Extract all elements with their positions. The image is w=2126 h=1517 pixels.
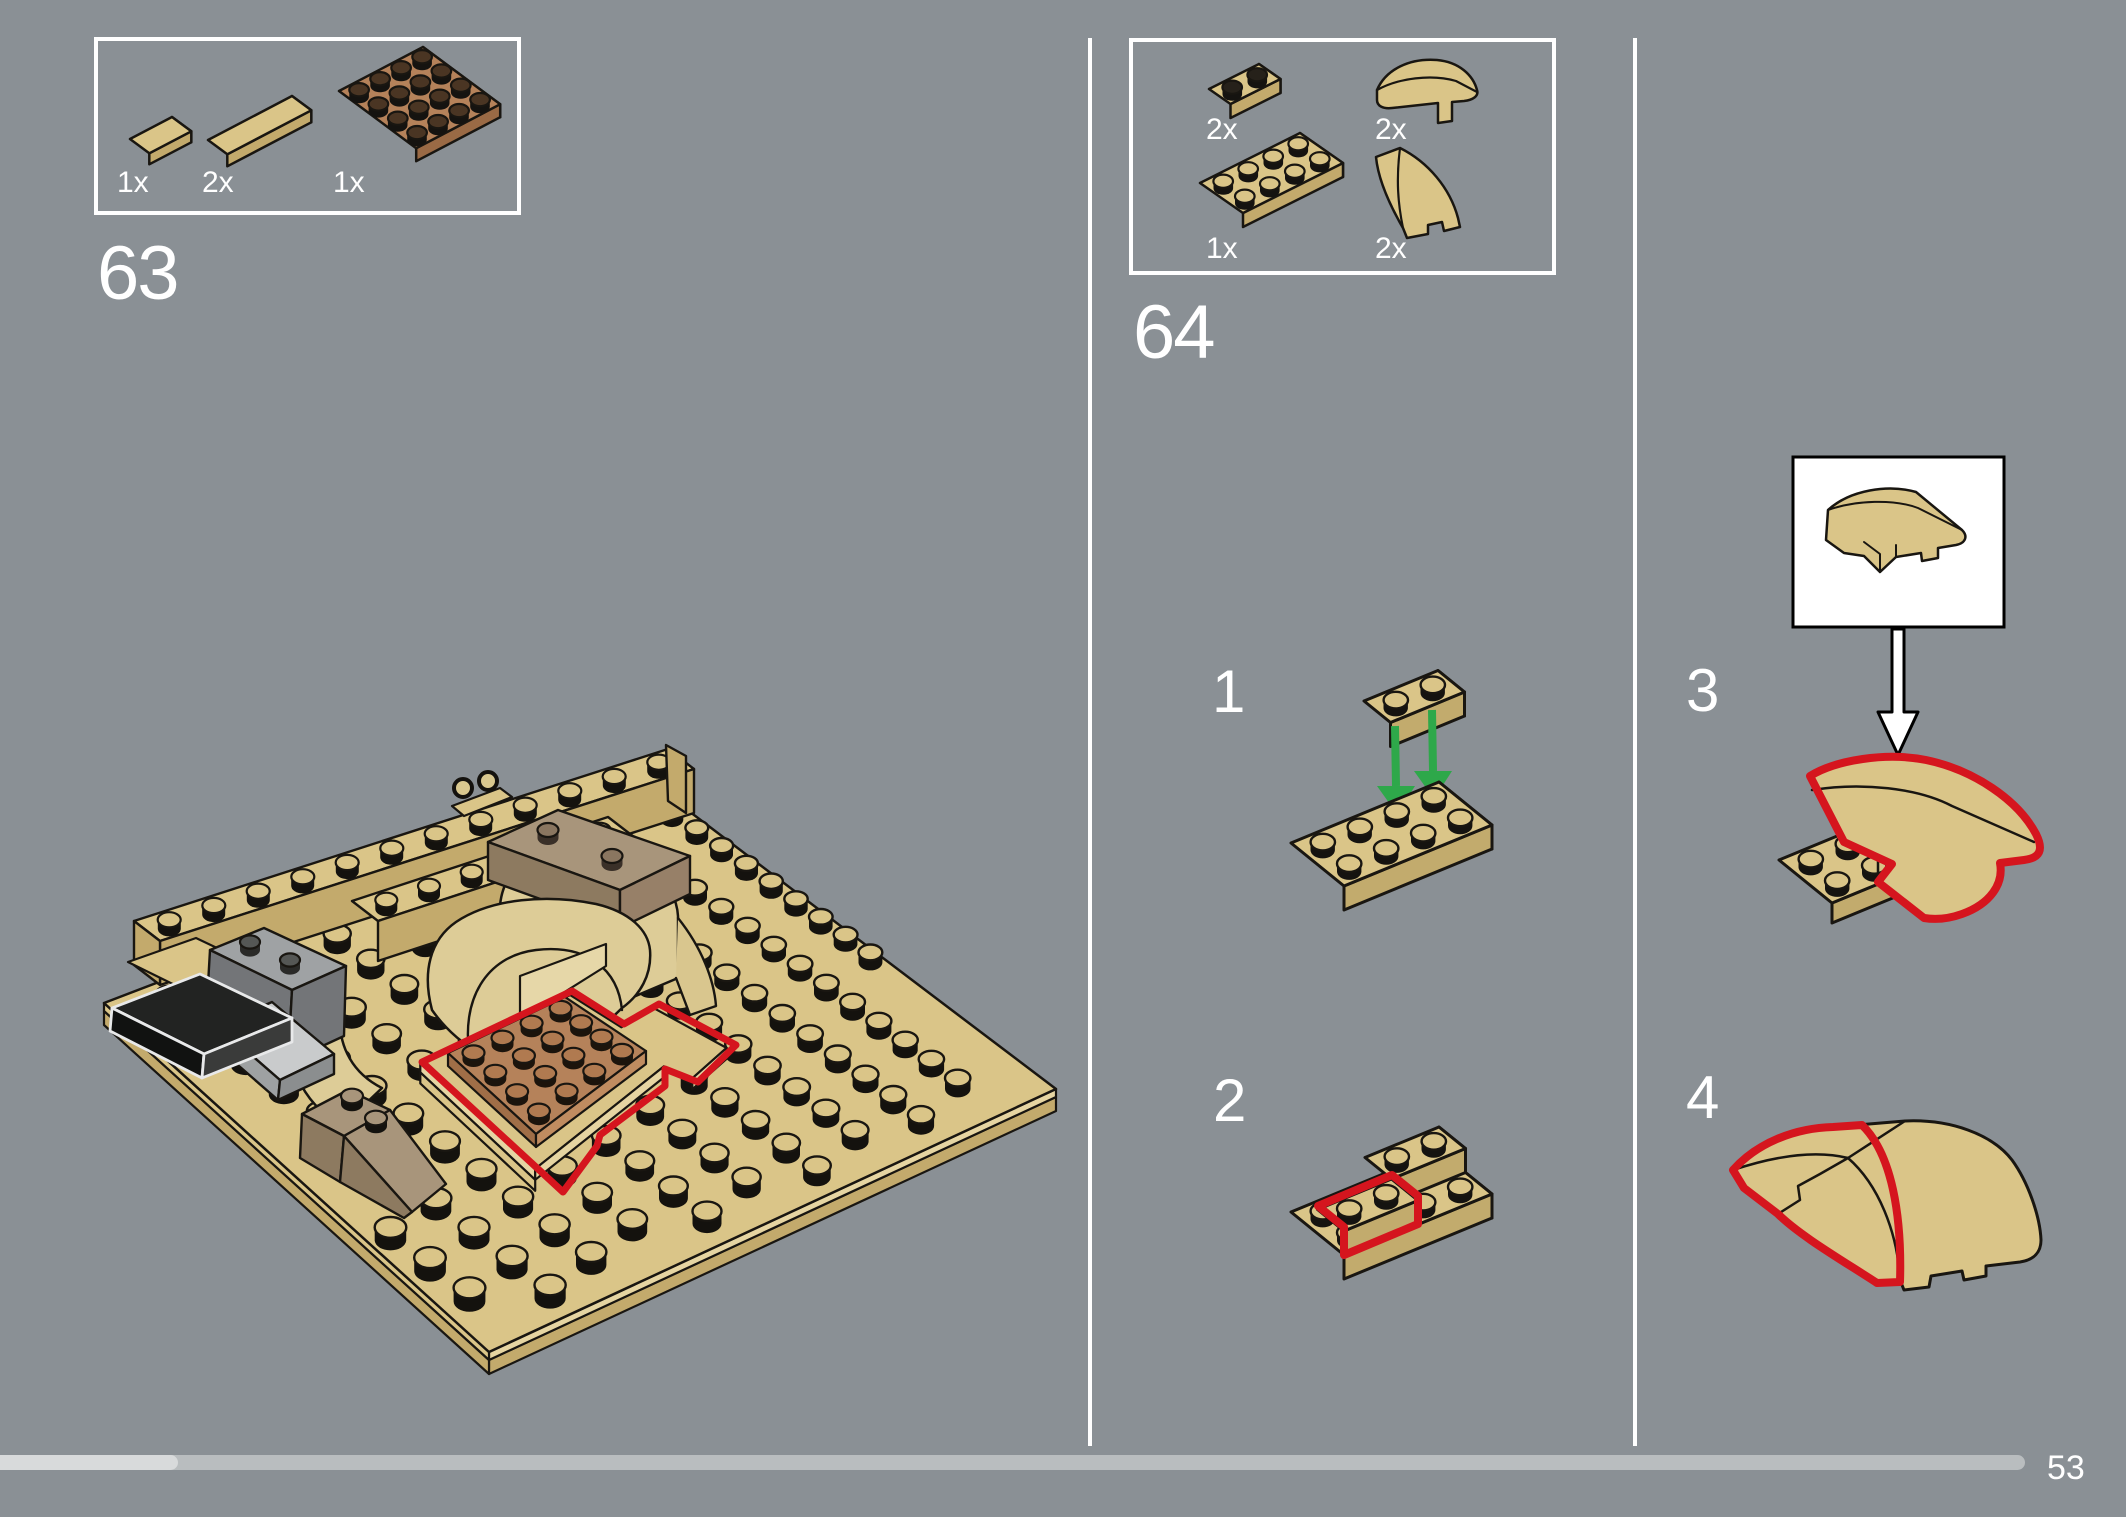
svg-text:53: 53 [2047, 1449, 2085, 1487]
svg-text:1x: 1x [333, 166, 365, 199]
svg-text:2x: 2x [1375, 113, 1407, 146]
svg-text:1x: 1x [1206, 232, 1238, 265]
svg-text:2: 2 [1213, 1067, 1246, 1134]
svg-text:63: 63 [97, 231, 178, 316]
svg-text:1x: 1x [117, 166, 149, 199]
svg-text:2x: 2x [202, 166, 234, 199]
svg-text:2x: 2x [1206, 113, 1238, 146]
svg-text:1: 1 [1212, 658, 1245, 725]
svg-text:2x: 2x [1375, 232, 1407, 265]
svg-text:64: 64 [1133, 290, 1214, 375]
svg-text:4: 4 [1686, 1064, 1719, 1131]
svg-text:3: 3 [1686, 657, 1719, 724]
